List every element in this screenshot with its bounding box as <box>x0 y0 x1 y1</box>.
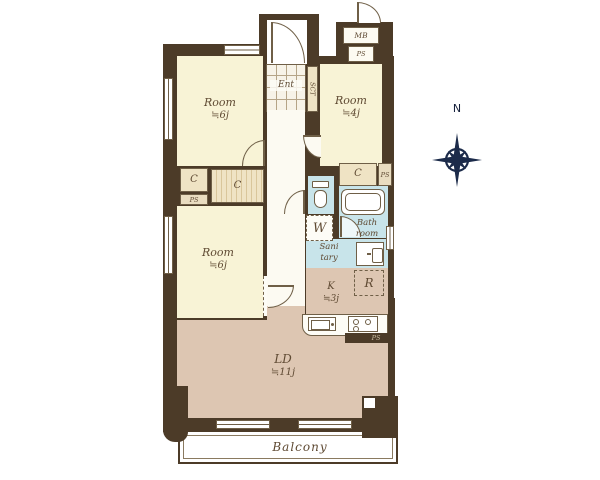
window-bathroom <box>386 226 394 250</box>
sanitary-label: Sani tary <box>306 242 352 263</box>
floor-plan: Balcony C PS C C PS MB PS SCT <box>0 0 600 480</box>
ld-floor-corridor-mouth <box>267 306 305 322</box>
washing-machine-space: W <box>306 215 333 241</box>
pipe-space-top-label: PS <box>357 50 366 58</box>
bathroom-label: Bath room <box>348 218 386 239</box>
sanitary-line2: tary <box>306 253 352 264</box>
pipe-space-top: PS <box>348 46 374 62</box>
bathtub-icon <box>341 189 385 215</box>
room-top-left-size: ≒6j <box>185 110 255 123</box>
window-ld-right <box>298 420 352 429</box>
room-mid-sliding-door <box>263 276 267 316</box>
window-top-wall <box>224 45 260 55</box>
shoe-cabinet-label: SCT <box>309 82 317 96</box>
compass-north-label: N <box>440 102 474 116</box>
meter-box-label: MB <box>354 31 367 40</box>
toilet-tank-icon <box>312 181 329 188</box>
washing-machine-label: W <box>313 221 326 236</box>
kitchen-sink-faucet <box>331 323 334 326</box>
ld-name: LD <box>250 352 316 367</box>
entrance-label: Ent <box>270 80 302 91</box>
refrigerator-label: R <box>364 276 373 290</box>
pipe-space-kitchen-label: PS <box>362 334 390 342</box>
bathroom-line1: Bath <box>348 218 386 229</box>
closet-small-left-label: C <box>190 174 198 187</box>
kitchen-sink-icon <box>308 317 336 331</box>
meter-box-door-arc <box>357 2 381 23</box>
room-top-left-label: Room ≒6j <box>185 96 255 122</box>
closet-right-label: C <box>354 168 362 181</box>
meter-box: MB <box>343 27 379 44</box>
balcony-label: Balcony <box>240 440 360 455</box>
toilet-bowl-icon <box>314 190 327 208</box>
stove-burner-3 <box>353 326 359 332</box>
stove-burner-2 <box>365 319 371 325</box>
room-mid-left-label: Room ≒6j <box>183 246 253 272</box>
pillar-notch <box>364 398 375 408</box>
room-mid-left-size: ≒6j <box>183 260 253 273</box>
stove-burner-1 <box>353 319 359 325</box>
pipe-space-left-label: PS <box>190 196 199 204</box>
washbasin-bowl <box>372 248 383 263</box>
sanitary-line1: Sani <box>306 242 352 253</box>
kitchen-size: ≒3j <box>312 294 350 305</box>
pillar-bottom-left <box>163 386 188 442</box>
kitchen-sink-inner <box>311 320 330 330</box>
window-room-top-left <box>164 78 173 140</box>
stove-icon <box>348 316 378 332</box>
closet-wide: C <box>211 169 264 203</box>
ld-size: ≒11j <box>250 367 316 380</box>
room-top-left-name: Room <box>185 96 255 110</box>
room-top-right-size: ≒4j <box>318 108 384 121</box>
refrigerator-space: R <box>354 270 384 296</box>
room-mid-left-name: Room <box>183 246 253 260</box>
room-top-right-name: Room <box>318 94 384 108</box>
pipe-space-left: PS <box>180 194 208 205</box>
window-ld-left <box>216 420 270 429</box>
washbasin-icon <box>356 242 384 266</box>
closet-right: C <box>339 163 377 186</box>
shoe-cabinet: SCT <box>307 66 318 112</box>
bathtub-inner <box>345 193 381 211</box>
kitchen-name: K <box>312 281 350 294</box>
pillar-bottom-right <box>362 396 398 438</box>
kitchen-label: K ≒3j <box>312 281 350 305</box>
pipe-space-right: PS <box>378 163 392 186</box>
ld-label: LD ≒11j <box>250 352 316 380</box>
compass-rose-icon <box>430 118 484 198</box>
pipe-space-right-label: PS <box>381 171 390 179</box>
room-top-right-label: Room ≒4j <box>318 94 384 120</box>
bathroom-line2: room <box>348 229 386 240</box>
closet-wide-label: C <box>234 180 242 193</box>
closet-small-left: C <box>180 168 208 192</box>
window-room-mid-left <box>164 216 173 274</box>
washbasin-tap <box>367 253 371 255</box>
